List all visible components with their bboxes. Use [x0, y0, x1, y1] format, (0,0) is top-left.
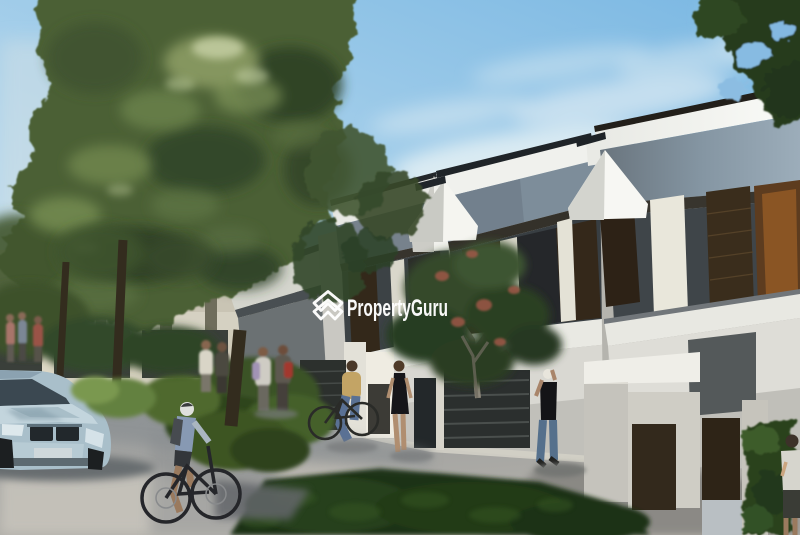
svg-text:PropertyGuru: PropertyGuru [347, 295, 448, 322]
